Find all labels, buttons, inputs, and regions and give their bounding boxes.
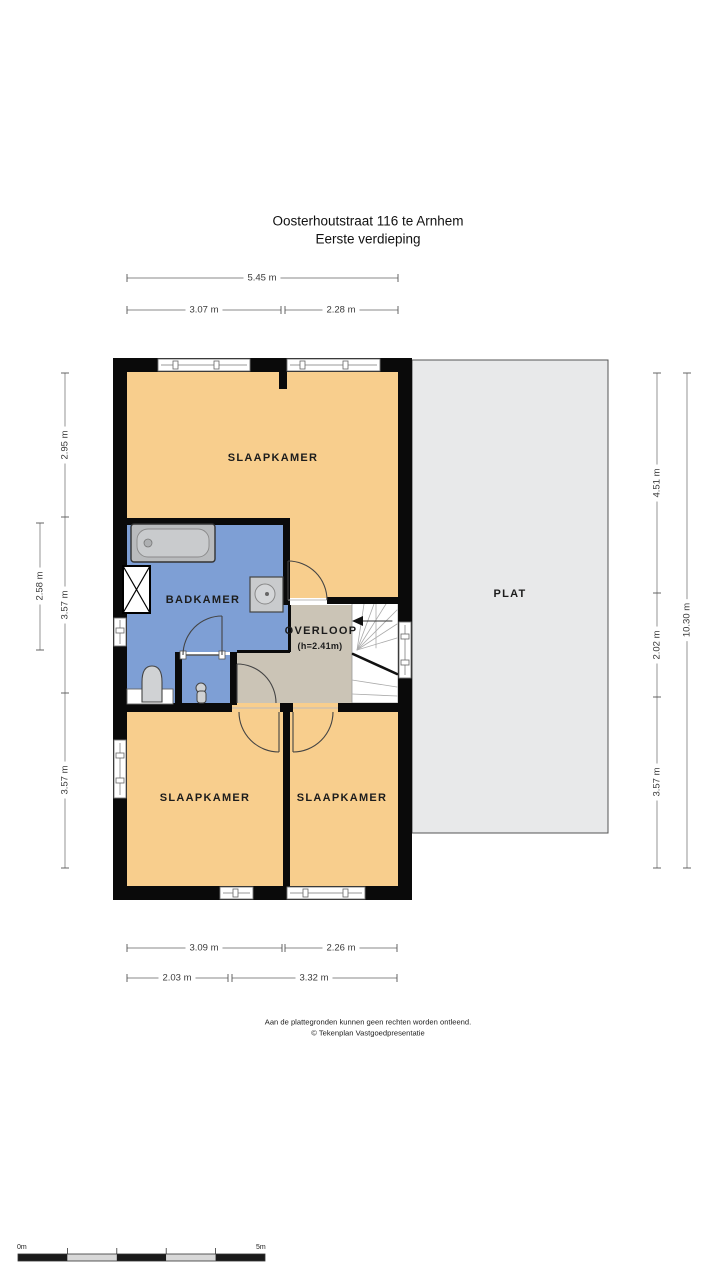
toilet-icon bbox=[196, 683, 206, 703]
dim-left-upper: 2.95 m bbox=[60, 426, 71, 463]
floorplan-drawing bbox=[0, 0, 720, 1280]
dim-right-lower: 3.57 m bbox=[652, 763, 663, 800]
dim-bottom-lower-right: 3.32 m bbox=[295, 973, 332, 984]
dim-right-middle: 2.02 m bbox=[652, 626, 663, 663]
room-label-flat-roof: PLAT bbox=[493, 588, 526, 600]
footer-disclaimer: Aan de plattegronden kunnen geen rechten… bbox=[265, 1017, 471, 1028]
window-top-right bbox=[287, 359, 380, 371]
scale-end-label: 5m bbox=[256, 1244, 266, 1251]
staircase bbox=[352, 598, 398, 703]
scale-start-label: 0m bbox=[17, 1244, 27, 1251]
dim-left-outer: 2.58 m bbox=[35, 567, 46, 604]
dim-bottom-upper-left: 3.09 m bbox=[185, 943, 222, 954]
room-label-landing: OVERLOOP bbox=[285, 625, 358, 637]
page-title: Oosterhoutstraat 116 te Arnhem Eerste ve… bbox=[272, 212, 463, 247]
footer-copyright: © Tekenplan Vastgoedpresentatie bbox=[265, 1028, 471, 1039]
dim-right-upper: 4.51 m bbox=[652, 464, 663, 501]
room-label-bedroom-bottom-left: SLAAPKAMER bbox=[160, 792, 251, 804]
floorplan-page: Oosterhoutstraat 116 te Arnhem Eerste ve… bbox=[0, 0, 720, 1280]
window-bottom-right bbox=[287, 887, 365, 899]
dim-left-lower: 3.57 m bbox=[60, 761, 71, 798]
dim-left-middle: 3.57 m bbox=[60, 586, 71, 623]
dim-top-left: 3.07 m bbox=[185, 305, 222, 316]
title-floor: Eerste verdieping bbox=[272, 230, 463, 248]
shaft-icon bbox=[123, 566, 150, 613]
scale-bar bbox=[18, 1248, 265, 1261]
window-left-bathroom bbox=[114, 618, 126, 646]
room-label-bedroom-bottom-right: SLAAPKAMER bbox=[297, 792, 388, 804]
window-top-left bbox=[158, 359, 250, 371]
window-bottom-left bbox=[220, 887, 253, 899]
room-label-bathroom: BADKAMER bbox=[166, 594, 241, 606]
window-right-stairwell bbox=[399, 622, 411, 678]
footer-note: Aan de plattegronden kunnen geen rechten… bbox=[265, 1017, 471, 1038]
title-address: Oosterhoutstraat 116 te Arnhem bbox=[272, 212, 463, 230]
window-left-bedroom bbox=[114, 740, 126, 798]
room-label-bedroom-top: SLAAPKAMER bbox=[228, 452, 319, 464]
dim-bottom-upper-right: 2.26 m bbox=[322, 943, 359, 954]
bathtub-icon bbox=[131, 524, 215, 562]
shower-icon bbox=[250, 577, 283, 612]
dim-top-right: 2.28 m bbox=[322, 305, 359, 316]
room-label-landing-height: (h=2.41m) bbox=[298, 641, 343, 651]
dim-bottom-lower-left: 2.03 m bbox=[158, 973, 195, 984]
dim-right-total: 10.30 m bbox=[682, 599, 693, 641]
dim-top-total: 5.45 m bbox=[243, 273, 280, 284]
